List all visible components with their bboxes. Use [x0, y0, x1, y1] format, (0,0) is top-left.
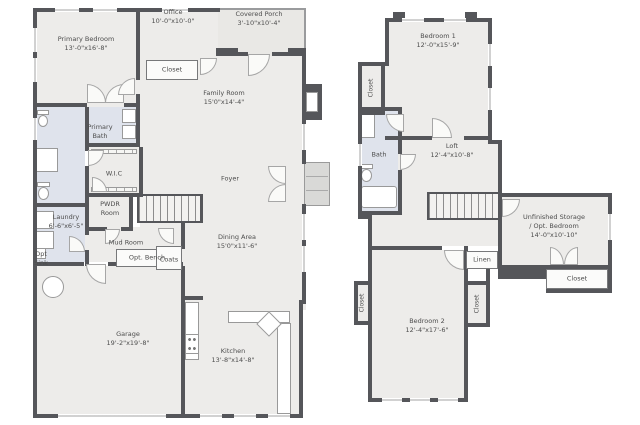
window	[488, 44, 492, 66]
bathtub	[361, 186, 397, 208]
wall	[385, 136, 432, 140]
room-name: W.I.C	[106, 170, 122, 179]
wall	[398, 170, 402, 215]
room-name: Unfinished Storage	[523, 213, 585, 222]
window	[438, 398, 458, 402]
room-name: Loft	[431, 142, 474, 151]
label-coats: Coats	[160, 256, 178, 265]
label-dining-area: Dining Area15'0"x11'-6"	[217, 233, 258, 251]
label-closet-storage: Closet	[567, 275, 587, 284]
label-office: Office10'-0"x10'-0"	[152, 8, 195, 26]
staircase	[427, 192, 500, 220]
room-name: Office	[152, 8, 195, 17]
window	[488, 88, 492, 110]
room-name: Closet	[162, 66, 182, 75]
vanity-cabinet	[361, 112, 375, 138]
room-name: PWDR Room	[95, 200, 125, 218]
wall	[608, 193, 612, 293]
room-name: Laundry	[49, 213, 84, 222]
floor-plan-canvas: Primary Bedroom13'-0"x16'-8" Office10'-0…	[0, 0, 640, 425]
room-dims: 12'-0"x15'-9"	[417, 41, 460, 50]
room-name: Primary Bedroom	[58, 35, 115, 44]
label-bedroom1: Bedroom 112'-0"x15'-9"	[417, 32, 460, 50]
room-dims: 6'-6"x6'-5"	[49, 222, 84, 231]
room-name: Bedroom 1	[417, 32, 460, 41]
room-dims: 13'-0"x16'-8"	[58, 44, 115, 53]
wall	[385, 18, 389, 66]
label-bedroom2: Bedroom 212'-4"x17'-6"	[406, 317, 449, 335]
room-dims: 19'-2"x19'-8"	[107, 339, 150, 348]
window	[382, 398, 402, 402]
room-name: Closet	[567, 275, 587, 284]
room-dims: 14'-0"x10'-10"	[523, 230, 585, 239]
label-kitchen: Kitchen13'-8"x14'-8"	[212, 347, 255, 365]
label-wic: W.I.C	[106, 170, 122, 179]
label-storage: Unfinished Storage/ Opt. Bedroom14'-0"x1…	[523, 213, 585, 239]
room-name-2: / Opt. Bedroom	[523, 222, 585, 231]
wall	[498, 193, 612, 197]
room-dims: 10'-0"x10'-0"	[152, 17, 195, 26]
room-name: Bedroom 2	[406, 317, 449, 326]
room-name: Family Room	[203, 89, 245, 98]
label-mud-room: Mud Room	[109, 239, 143, 248]
room-name: Primary Bath	[83, 123, 117, 141]
label-primary-bedroom: Primary Bedroom13'-0"x16'-8"	[58, 35, 115, 53]
wall	[488, 18, 492, 140]
room-dims: 12'-4"x10'-8"	[431, 151, 474, 160]
room-name: Mud Room	[109, 239, 143, 248]
label-garage: Garage19'-2"x19'-8"	[107, 330, 150, 348]
wall	[358, 62, 362, 215]
wall	[498, 140, 502, 197]
room-dims: 3'-10"x10'-4"	[236, 19, 283, 28]
wall	[546, 289, 612, 293]
room-name: Garage	[107, 330, 150, 339]
wall	[368, 215, 372, 250]
label-closet-right: Closet	[474, 295, 481, 314]
label-primary-bath: Primary Bath	[83, 123, 117, 141]
wall	[465, 12, 477, 18]
wall	[372, 246, 442, 250]
room-dims: 12'-4"x17'-6"	[406, 326, 449, 335]
room-name: Covered Porch	[236, 10, 283, 19]
wall	[486, 281, 490, 327]
window	[358, 144, 362, 166]
label-bath2: Bath	[371, 151, 386, 160]
label-opt-sink: Opt Sink	[31, 250, 51, 268]
window	[402, 18, 424, 22]
window	[444, 18, 466, 22]
room-name: Dining Area	[217, 233, 258, 242]
room-name: Foyer	[221, 175, 239, 184]
label-laundry: Laundry6'-6"x6'-5"	[49, 213, 84, 231]
room-dims: 13'-8"x14'-8"	[212, 356, 255, 365]
wall	[358, 111, 385, 115]
room-name: Closet	[474, 295, 481, 314]
window	[410, 398, 430, 402]
room-name: Closet	[368, 79, 375, 98]
wall	[358, 107, 402, 111]
label-closet-b1: Closet	[368, 79, 375, 98]
room-name: Linen	[473, 256, 491, 265]
label-foyer: Foyer	[221, 175, 239, 184]
room-name: Kitchen	[212, 347, 255, 356]
wall	[354, 321, 372, 325]
room-name: Bath	[371, 151, 386, 160]
room-name: Closet	[359, 294, 366, 313]
label-covered-porch: Covered Porch3'-10"x10'-4"	[236, 10, 283, 28]
toilet-bowl	[361, 169, 372, 182]
window	[608, 214, 612, 240]
label-loft: Loft12'-4"x10'-8"	[431, 142, 474, 160]
wall	[354, 281, 358, 325]
room-dims: 15'0"x11'-6"	[217, 242, 258, 251]
wall	[464, 323, 490, 327]
label-pwdr-room: PWDR Room	[95, 200, 125, 218]
label-linen: Linen	[473, 256, 491, 265]
room-dims: 15'0"x14'-4"	[203, 98, 245, 107]
label-closet: Closet	[162, 66, 182, 75]
label-family-room: Family Room15'0"x14'-4"	[203, 89, 245, 107]
room-name: Opt Sink	[31, 250, 51, 268]
room-name: Coats	[160, 256, 178, 265]
label-closet-left: Closet	[359, 294, 366, 313]
